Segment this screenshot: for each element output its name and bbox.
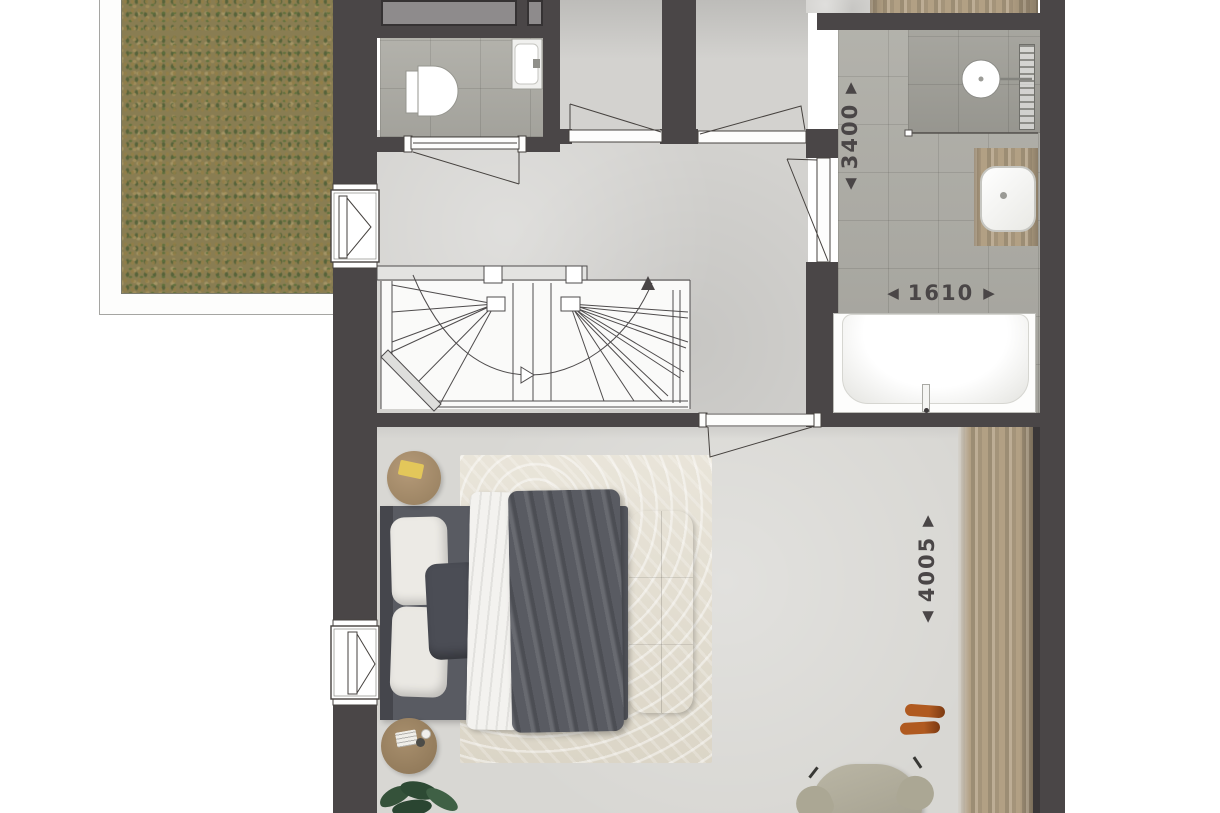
bath-drain: [924, 408, 929, 413]
bench: [629, 511, 693, 713]
wall-segment: [377, 137, 410, 152]
towel-radiator: [1019, 44, 1035, 130]
duvet: [508, 489, 624, 733]
hallway-floor: [377, 130, 808, 413]
upper-room-left-floor: [560, 0, 663, 132]
wall-segment: [519, 137, 560, 152]
dimension-bath-depth: ◀ 3400 ▶: [837, 76, 863, 196]
dim-arrow-end: ▶: [920, 515, 935, 527]
wall-segment: [333, 262, 377, 625]
dim-value: 4005: [917, 536, 938, 602]
upper-wood-floor-strip: [870, 0, 1038, 13]
dim-value: 1610: [908, 283, 974, 304]
bathtub: [833, 313, 1036, 413]
upper-room-right-floor: [696, 0, 808, 132]
wall-segment: [1040, 0, 1065, 813]
wall-segment: [333, 0, 377, 190]
dim-arrow-end: ▶: [843, 82, 858, 94]
wall-segment: [817, 13, 1065, 30]
wardrobe-edge: [1033, 427, 1040, 813]
wall-segment: [543, 0, 560, 152]
wall-segment: [662, 0, 696, 130]
wall-segment: [560, 129, 572, 144]
wall-segment: [821, 413, 1065, 427]
wardrobe: [958, 427, 1033, 813]
dim-arrow-start: ◀: [887, 286, 899, 301]
wall-segment: [660, 129, 698, 144]
wall-segment: [333, 413, 699, 427]
wall-niche: [527, 0, 543, 26]
dim-value: 3400: [840, 103, 861, 169]
bathtub-basin: [842, 314, 1029, 404]
basin-faucet: [1000, 192, 1007, 199]
washbasin: [980, 166, 1036, 232]
table-decor: [416, 738, 425, 747]
green-roof-frame: [99, 0, 342, 315]
dim-arrow-end: ▶: [983, 286, 995, 301]
wall-segment: [333, 698, 377, 813]
dimension-bedroom-depth: ◀ 4005 ▶: [914, 509, 940, 629]
slipper: [900, 721, 941, 735]
wall-segment: [806, 129, 838, 158]
upper-room-floor-strip: [806, 0, 870, 13]
dim-arrow-start: ◀: [920, 611, 935, 623]
bedroom-window: [331, 620, 379, 705]
table-decor: [421, 729, 431, 739]
green-roof: [121, 0, 334, 294]
dimension-bath-width: ◀ 1610 ▶: [881, 280, 1001, 306]
dim-arrow-start: ◀: [843, 178, 858, 190]
toilet-floor: [380, 38, 543, 137]
side-table: [381, 718, 437, 774]
floor-plan-canvas: ◀ 3400 ▶ ◀ 1610 ▶ ◀ 4005 ▶: [0, 0, 1220, 813]
wall-niche: [381, 0, 517, 26]
